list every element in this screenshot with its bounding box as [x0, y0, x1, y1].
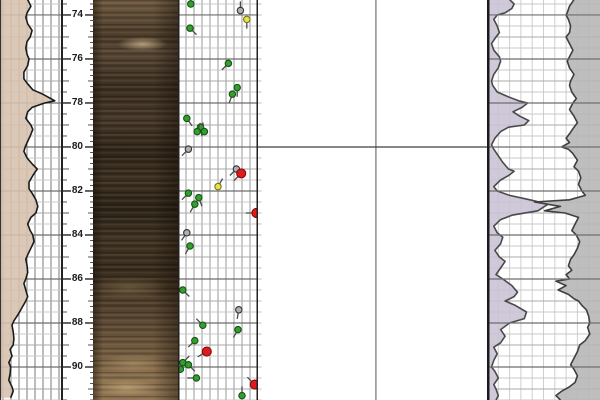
track-tadpole-plot[interactable] — [178, 0, 258, 400]
tadpole-point[interactable] — [229, 91, 235, 103]
depth-label: 88 — [63, 317, 83, 328]
depth-label: 80 — [63, 141, 83, 152]
tadpole-point[interactable] — [180, 287, 190, 297]
depth-label: 90 — [63, 361, 83, 372]
depth-label: 78 — [63, 97, 83, 108]
depth-label: 84 — [63, 229, 83, 240]
tadpole-point[interactable] — [239, 386, 245, 398]
depth-label: 74 — [63, 9, 83, 20]
tadpole-point[interactable] — [188, 0, 194, 7]
tadpole-point[interactable] — [222, 60, 232, 70]
core-photo-image[interactable] — [93, 0, 178, 400]
depth-label: 76 — [63, 53, 83, 64]
tadpole-point[interactable] — [247, 377, 258, 389]
tadpole-point[interactable] — [184, 115, 192, 126]
tadpole-point[interactable] — [246, 208, 258, 217]
tadpole-point[interactable] — [188, 337, 198, 347]
track-empty[interactable] — [258, 0, 487, 400]
tadpole-point[interactable] — [236, 307, 242, 319]
tadpole-point[interactable] — [187, 375, 199, 381]
tadpole-point[interactable] — [185, 243, 193, 254]
depth-label: 86 — [63, 273, 83, 284]
tadpole-point[interactable] — [198, 347, 212, 357]
track-curve-left[interactable] — [0, 0, 63, 400]
tadpole-point[interactable] — [237, 1, 243, 13]
depth-label: 82 — [63, 185, 83, 196]
well-log-view: 747678808284868890 — [0, 0, 600, 400]
tadpole-point[interactable] — [244, 16, 250, 28]
depth-ruler: 747678808284868890 — [63, 0, 93, 400]
tadpole-point[interactable] — [233, 326, 241, 337]
track-curves-right[interactable] — [487, 0, 600, 400]
